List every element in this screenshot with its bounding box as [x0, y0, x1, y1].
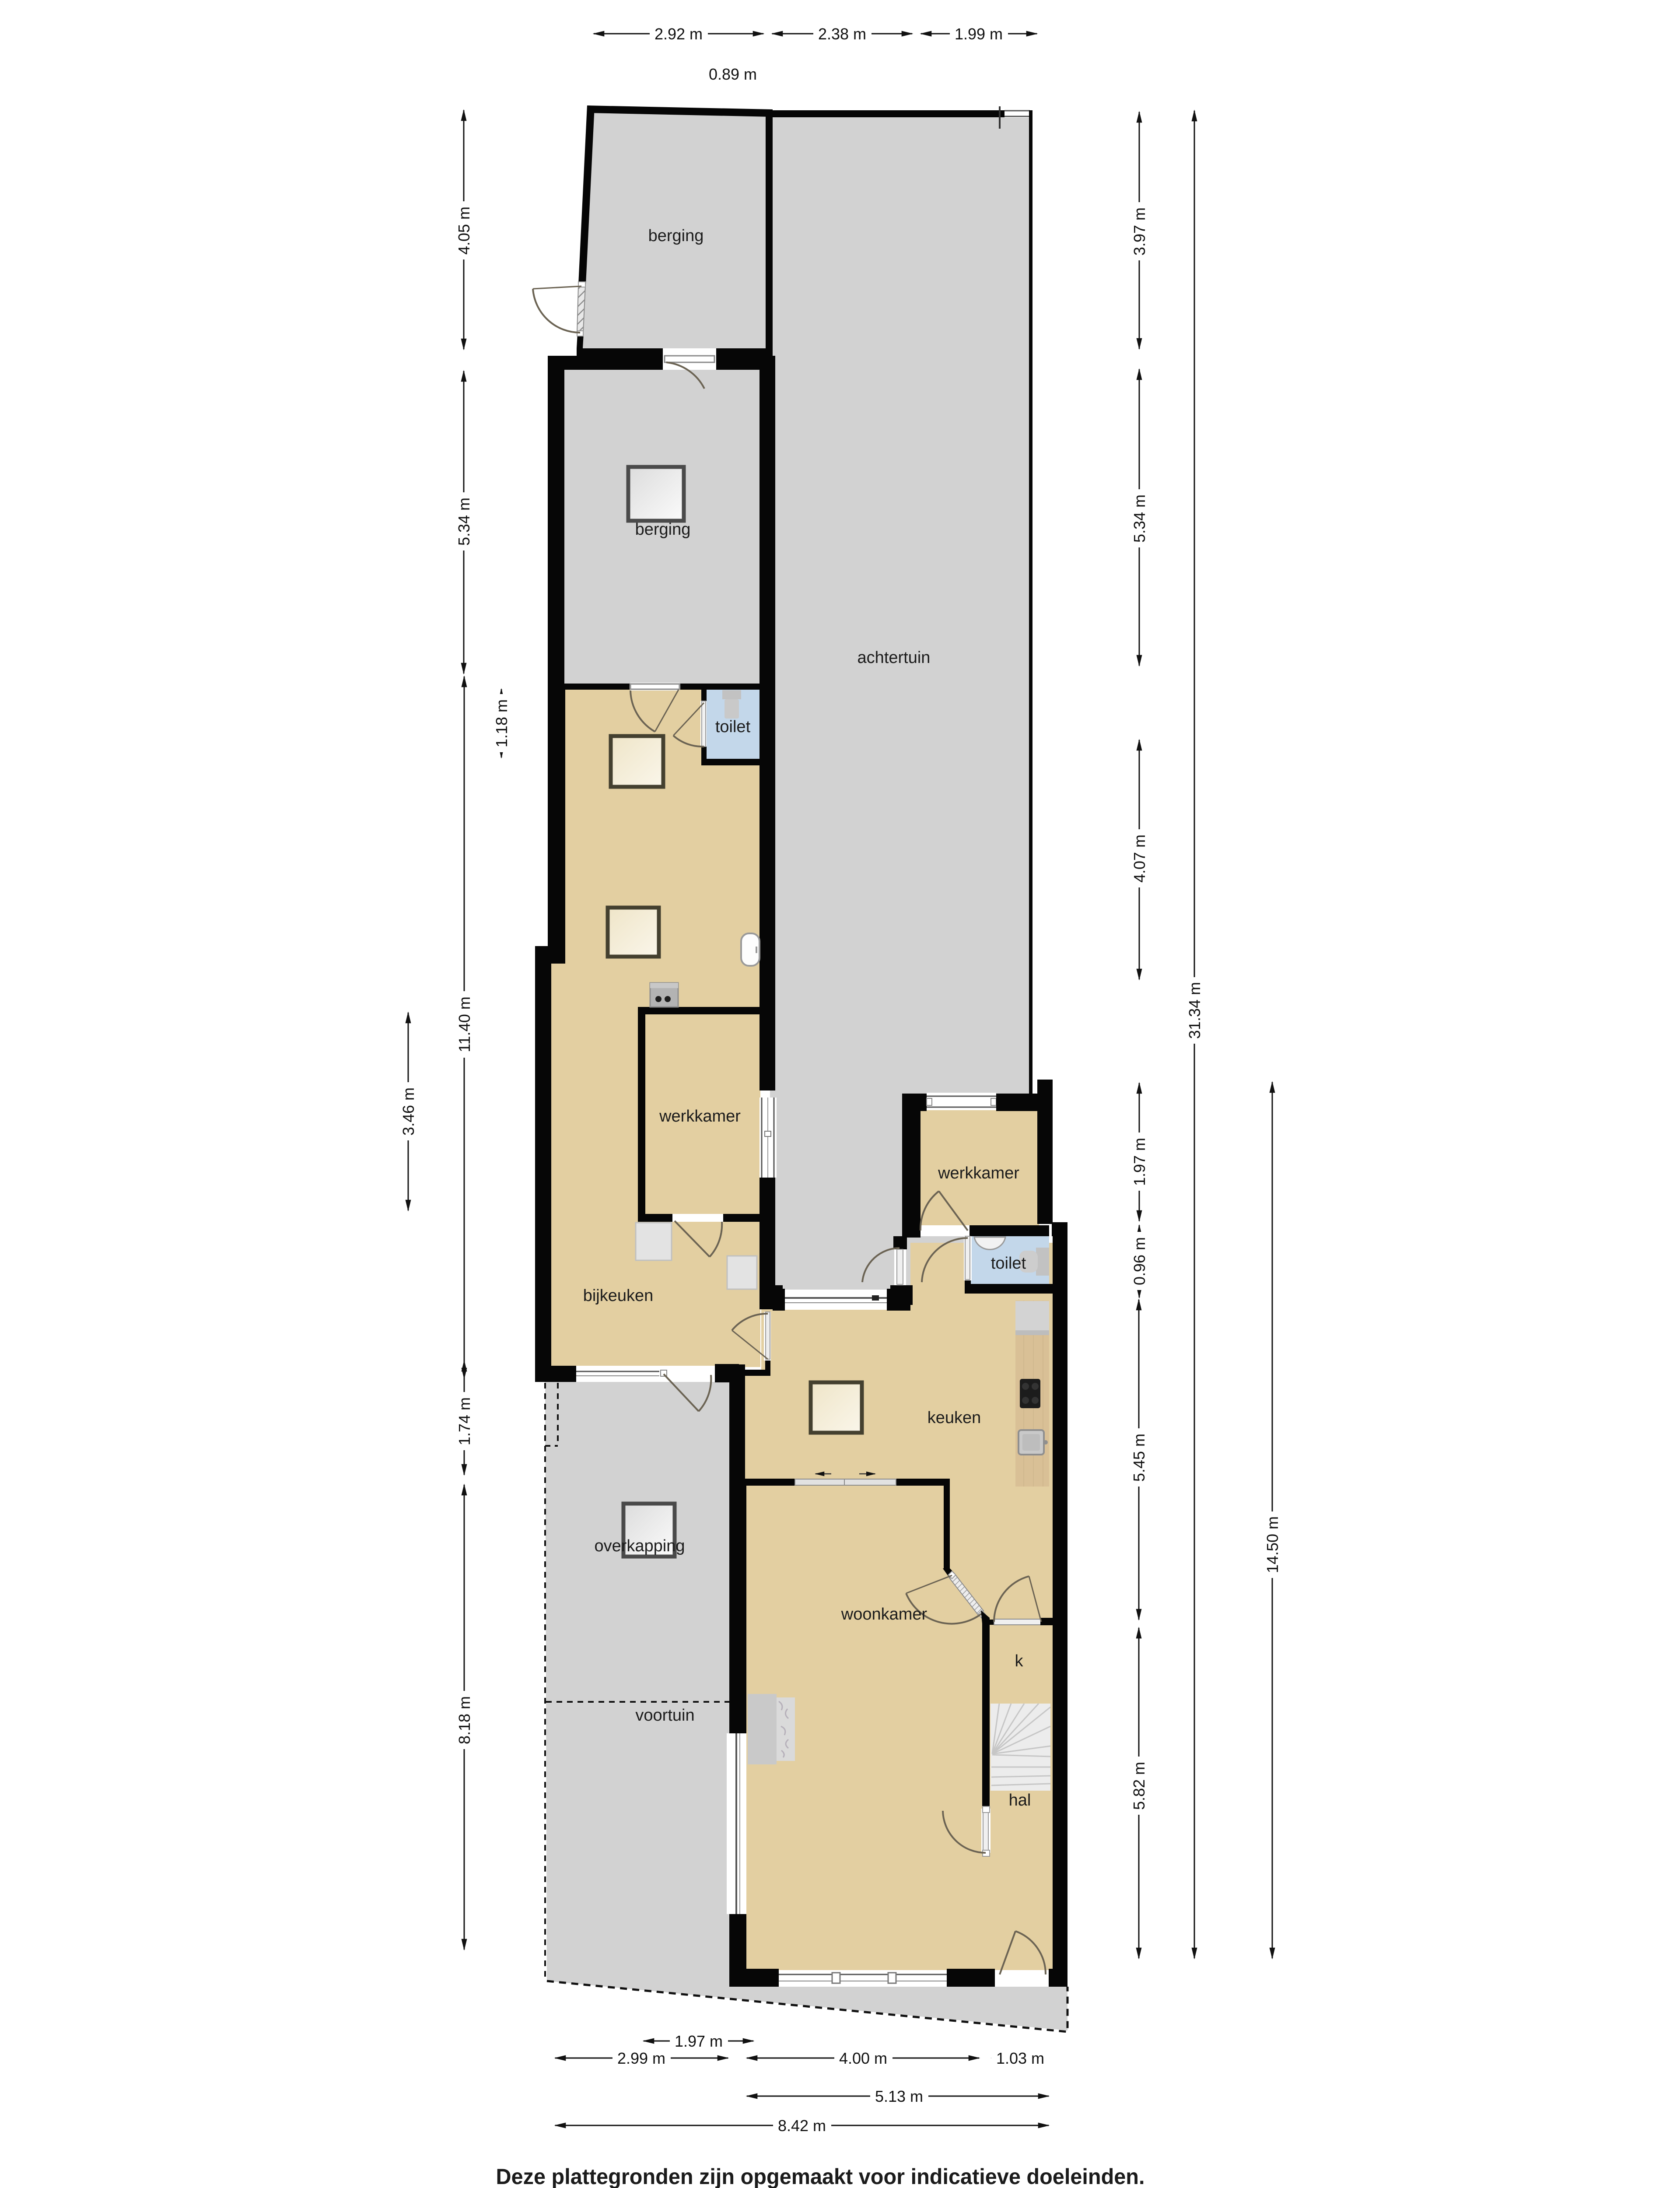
svg-text:5.13 m: 5.13 m [875, 2087, 923, 2105]
svg-text:0.96 m: 0.96 m [1130, 1237, 1148, 1285]
svg-text:toilet: toilet [715, 718, 751, 736]
svg-text:5.82 m: 5.82 m [1130, 1762, 1148, 1810]
svg-text:4.00 m: 4.00 m [839, 2049, 887, 2067]
svg-text:1.99 m: 1.99 m [955, 25, 1003, 43]
svg-text:4.07 m: 4.07 m [1130, 835, 1148, 883]
svg-text:3.97 m: 3.97 m [1130, 207, 1148, 256]
svg-text:1.97 m: 1.97 m [675, 2032, 723, 2050]
svg-text:bijkeuken: bijkeuken [583, 1287, 654, 1305]
svg-text:31.34 m: 31.34 m [1186, 982, 1204, 1039]
svg-text:achtertuin: achtertuin [857, 649, 931, 667]
svg-text:0.89 m: 0.89 m [709, 65, 757, 83]
svg-text:keuken: keuken [927, 1409, 981, 1427]
svg-text:toilet: toilet [991, 1254, 1026, 1273]
svg-text:8.18 m: 8.18 m [455, 1696, 473, 1744]
svg-text:5.45 m: 5.45 m [1130, 1434, 1148, 1482]
svg-text:1.18 m: 1.18 m [493, 699, 511, 747]
svg-text:overkapping: overkapping [594, 1537, 685, 1555]
svg-text:1.97 m: 1.97 m [1130, 1138, 1148, 1186]
svg-text:werkkamer: werkkamer [938, 1164, 1019, 1182]
svg-text:2.92 m: 2.92 m [654, 25, 703, 43]
svg-text:11.40 m: 11.40 m [455, 996, 473, 1052]
svg-text:2.99 m: 2.99 m [617, 2049, 665, 2067]
svg-text:woonkamer: woonkamer [841, 1605, 927, 1623]
svg-text:5.34 m: 5.34 m [1130, 494, 1148, 543]
svg-text:berging: berging [648, 227, 704, 245]
svg-text:1.03 m: 1.03 m [996, 2049, 1044, 2067]
svg-text:8.42 m: 8.42 m [778, 2117, 826, 2135]
svg-text:voortuin: voortuin [635, 1706, 694, 1725]
svg-text:3.46 m: 3.46 m [399, 1087, 417, 1136]
svg-text:Deze plattegronden zijn opgema: Deze plattegronden zijn opgemaakt voor i… [496, 2164, 1145, 2188]
svg-text:5.34 m: 5.34 m [455, 498, 473, 546]
svg-text:2.38 m: 2.38 m [818, 25, 866, 43]
svg-text:hal: hal [1009, 1791, 1031, 1809]
svg-text:k: k [1015, 1652, 1024, 1670]
svg-text:14.50 m: 14.50 m [1263, 1516, 1281, 1573]
svg-text:4.05 m: 4.05 m [455, 207, 473, 255]
svg-text:werkkamer: werkkamer [659, 1107, 741, 1126]
svg-text:berging: berging [635, 520, 691, 539]
svg-text:1.74 m: 1.74 m [455, 1397, 473, 1445]
